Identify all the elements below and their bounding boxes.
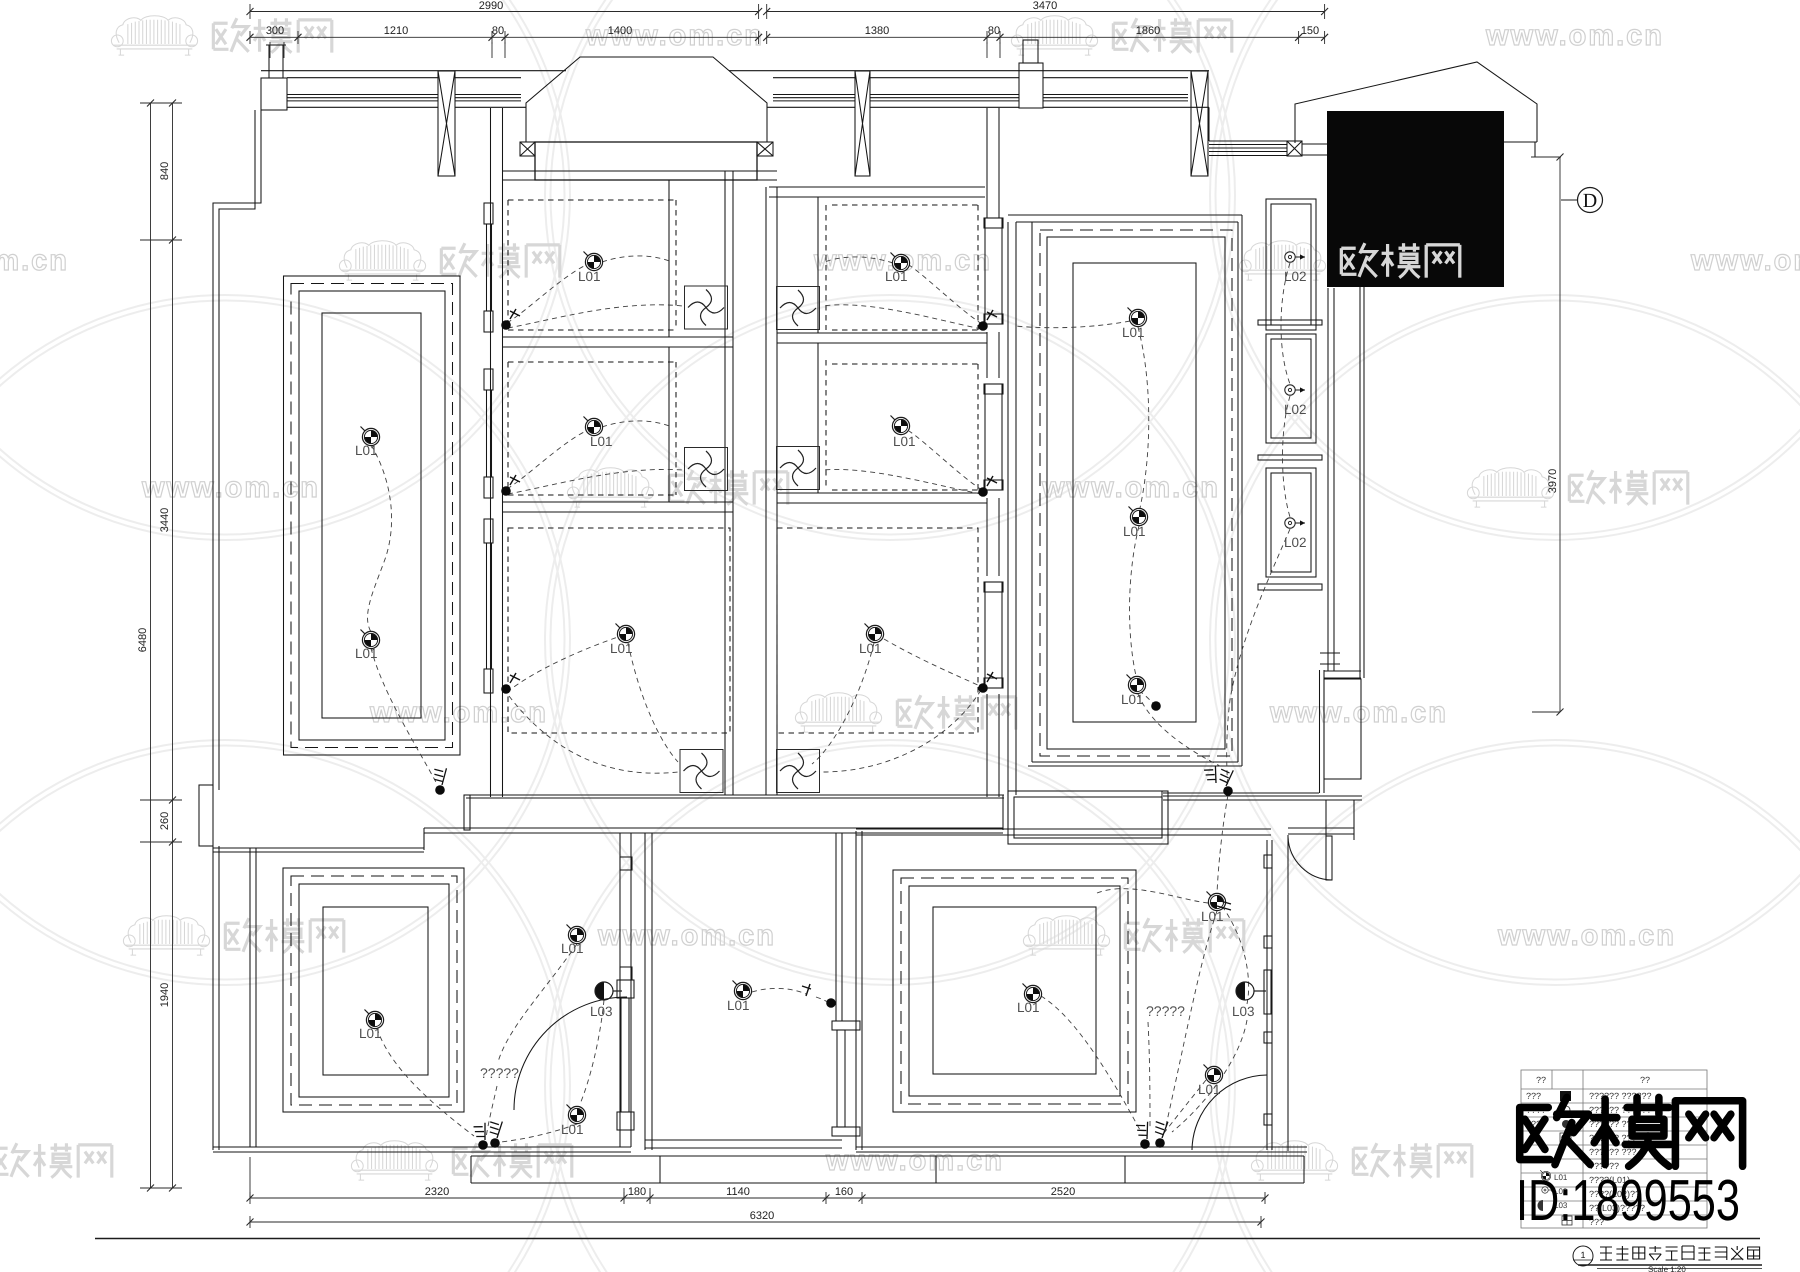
svg-text:2520: 2520 [1051, 1186, 1075, 1198]
svg-text:L02: L02 [1284, 535, 1307, 550]
svg-text:?????? ??????: ?????? ?????? [1589, 1091, 1652, 1101]
svg-text:6480: 6480 [137, 628, 149, 652]
svg-text:1400: 1400 [608, 25, 632, 37]
svg-text:80: 80 [492, 25, 504, 37]
svg-text:1940: 1940 [159, 983, 171, 1007]
svg-text:L01: L01 [610, 641, 633, 656]
svg-text:1140: 1140 [726, 1186, 750, 1198]
svg-text:L01: L01 [859, 641, 882, 656]
svg-text:L01: L01 [1198, 1082, 1221, 1097]
svg-text:1860: 1860 [1136, 25, 1160, 37]
svg-text:1210: 1210 [384, 25, 408, 37]
svg-text:2320: 2320 [425, 1186, 449, 1198]
svg-text:?????: ????? [1146, 1003, 1185, 1019]
svg-text:L01: L01 [1017, 1000, 1040, 1015]
svg-text:L01: L01 [359, 1026, 382, 1041]
svg-text:6320: 6320 [750, 1210, 774, 1222]
svg-text:L01: L01 [561, 1122, 584, 1137]
svg-text:???: ??? [1526, 1091, 1541, 1101]
svg-text:L01: L01 [1123, 524, 1146, 539]
svg-text:L01: L01 [1201, 909, 1224, 924]
svg-text:L02: L02 [1284, 269, 1307, 284]
svg-text:L01: L01 [1122, 325, 1145, 340]
svg-text:ID:1899553: ID:1899553 [1516, 1168, 1740, 1233]
svg-text:L01: L01 [578, 269, 601, 284]
svg-text:?????: ????? [480, 1065, 519, 1081]
svg-text:160: 160 [835, 1186, 853, 1198]
svg-text:L01: L01 [885, 269, 908, 284]
svg-text:3470: 3470 [1033, 0, 1057, 12]
svg-text:L01: L01 [590, 434, 613, 449]
svg-text:L03: L03 [1232, 1004, 1255, 1019]
svg-text:L01: L01 [355, 443, 378, 458]
svg-text:??: ?? [1640, 1075, 1650, 1085]
svg-text:180: 180 [628, 1186, 646, 1198]
svg-text:L01: L01 [355, 646, 378, 661]
svg-text:L01: L01 [893, 434, 916, 449]
svg-text:840: 840 [159, 162, 171, 180]
svg-text:L02: L02 [1284, 402, 1307, 417]
svg-text:1380: 1380 [865, 25, 889, 37]
svg-text:L01: L01 [727, 998, 750, 1013]
svg-text:260: 260 [159, 812, 171, 830]
svg-text:2990: 2990 [479, 0, 503, 12]
svg-text:80: 80 [988, 25, 1000, 37]
svg-text:L03: L03 [590, 1004, 613, 1019]
svg-text:L01: L01 [561, 941, 584, 956]
svg-text:?????? ???: ?????? ??? [1589, 1147, 1637, 1157]
svg-text:L01: L01 [1121, 692, 1144, 707]
svg-text:150: 150 [1301, 25, 1319, 37]
svg-text:1: 1 [1580, 1250, 1585, 1260]
svg-text:3970: 3970 [1547, 469, 1559, 493]
svg-text:??: ?? [1536, 1075, 1546, 1085]
svg-text:3440: 3440 [159, 508, 171, 532]
svg-text:300: 300 [266, 25, 284, 37]
svg-text:Scale 1:20: Scale 1:20 [1648, 1265, 1686, 1272]
svg-text:D: D [1583, 190, 1597, 212]
